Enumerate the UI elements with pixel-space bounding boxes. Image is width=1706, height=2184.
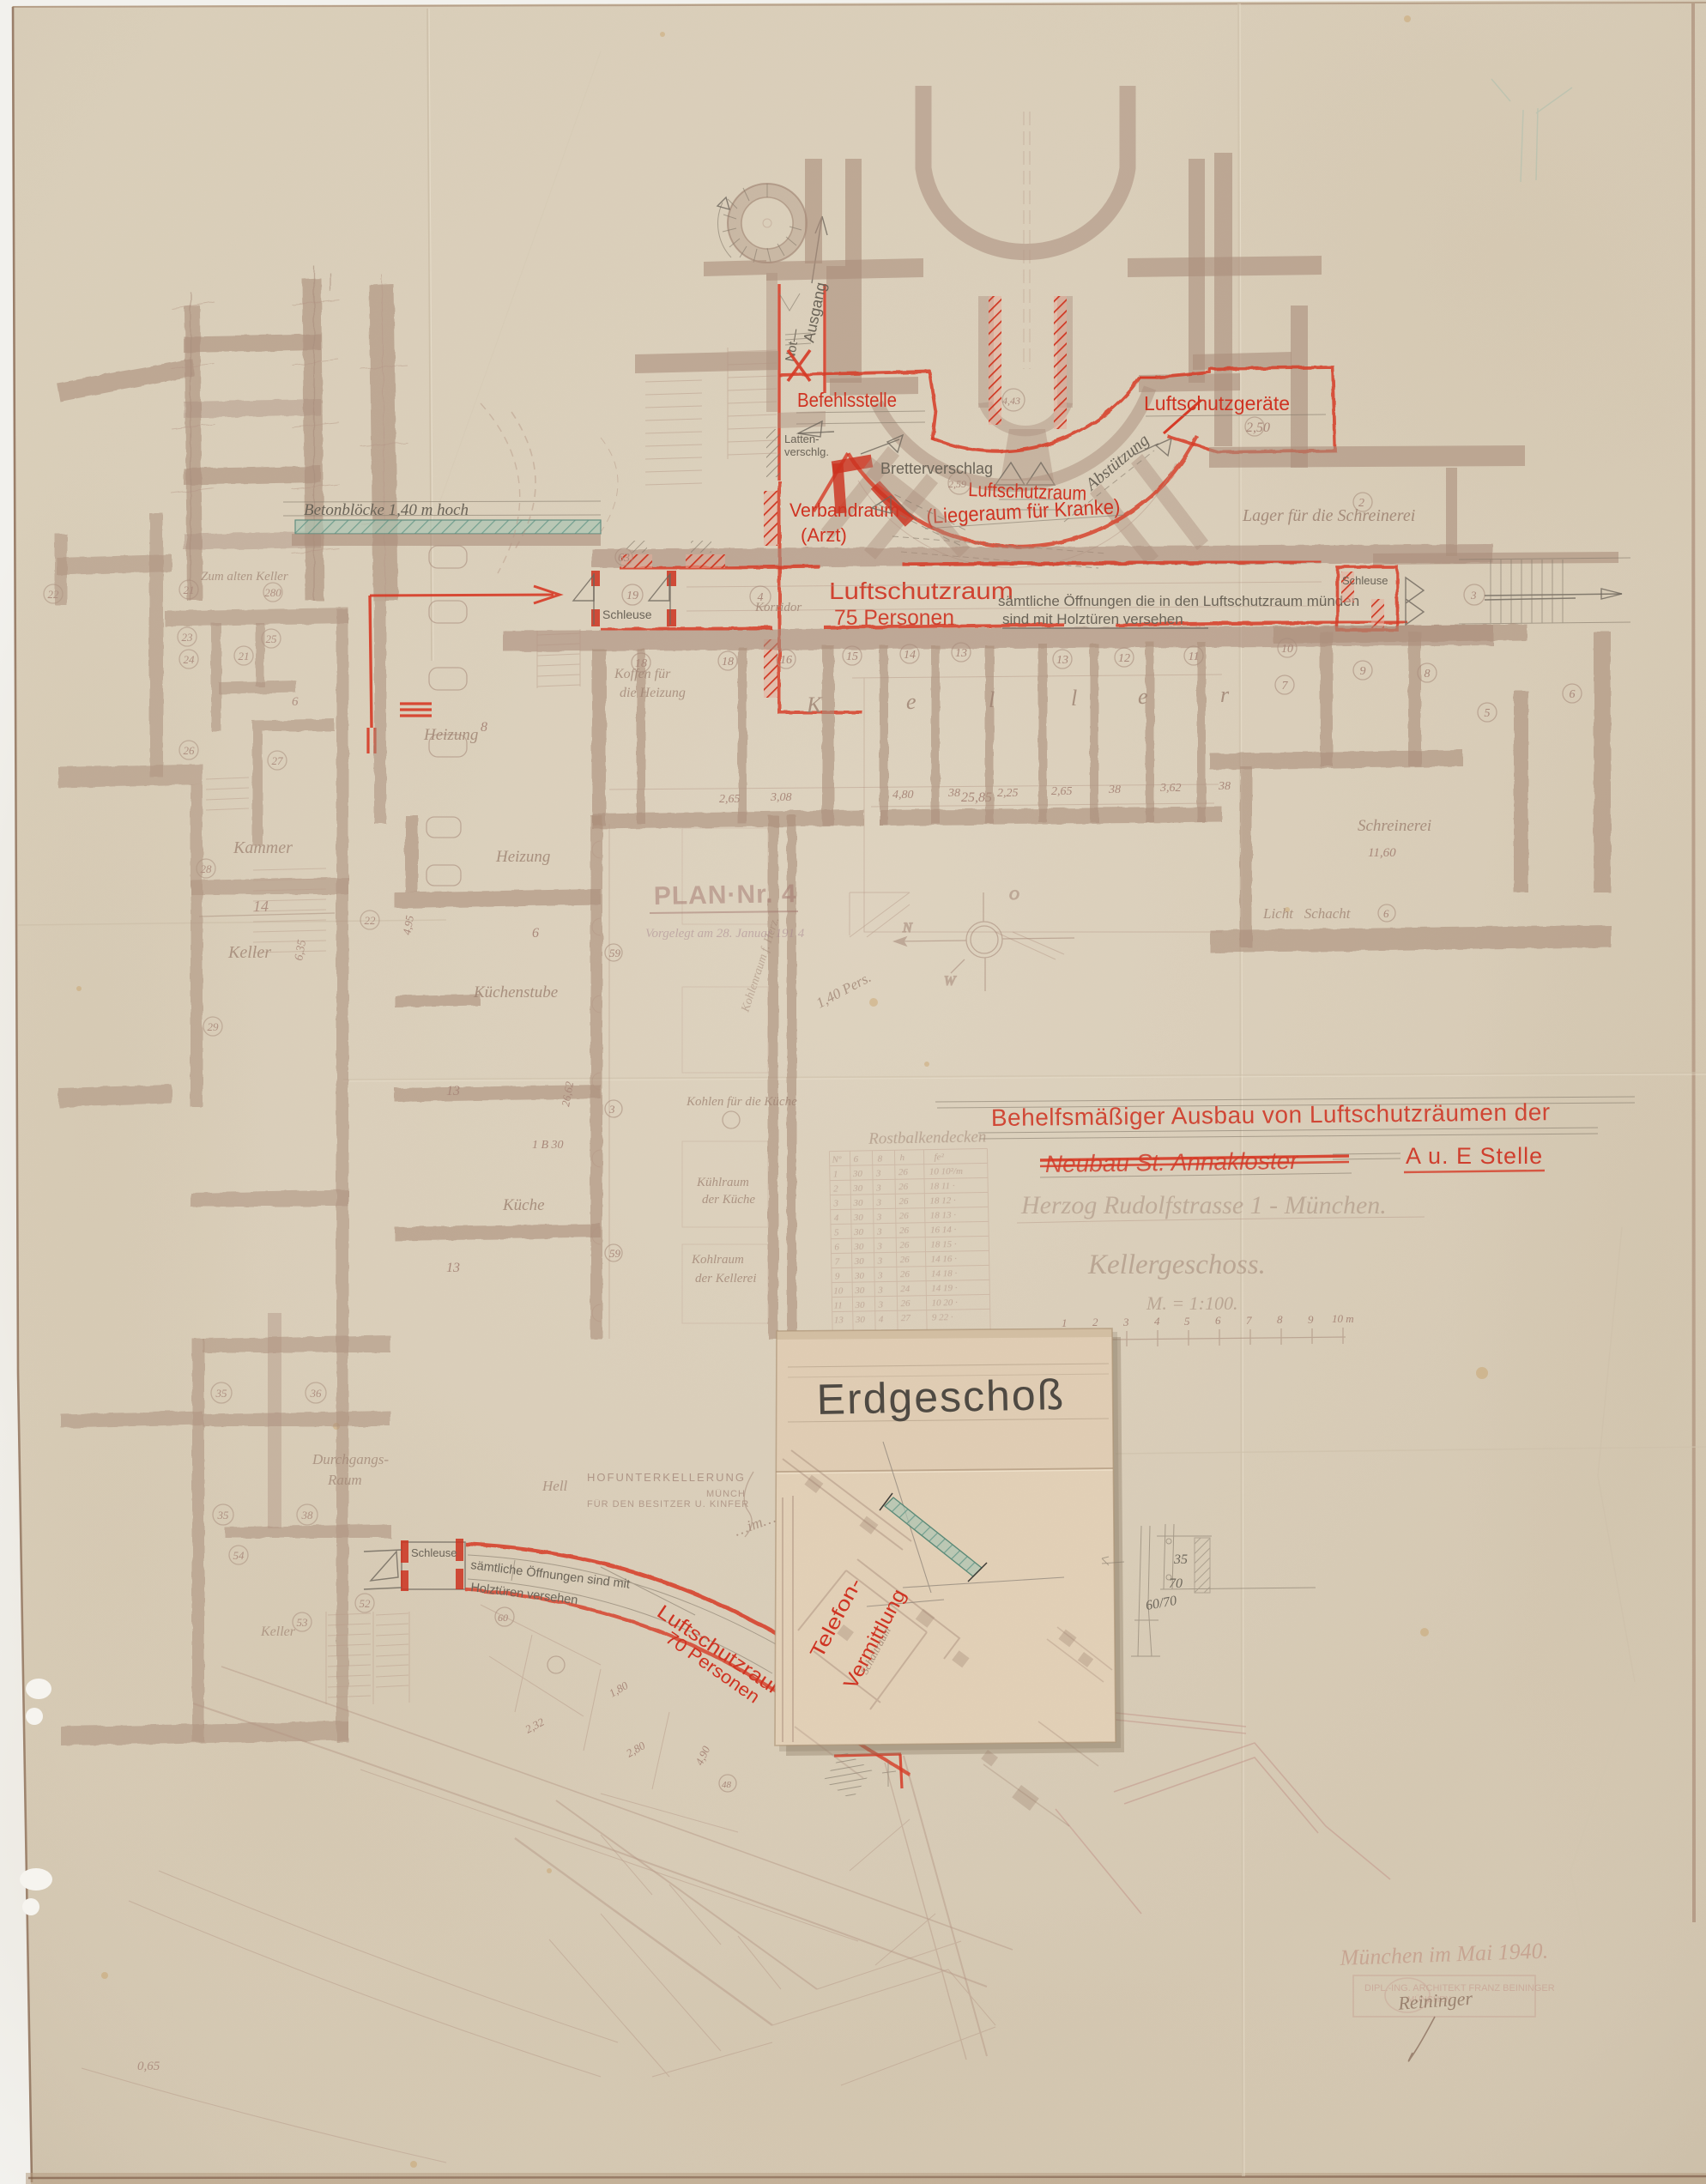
svg-text:10 m: 10 m bbox=[1332, 1312, 1354, 1325]
svg-text:Schleuse: Schleuse bbox=[411, 1546, 457, 1559]
svg-text:3: 3 bbox=[875, 1169, 881, 1179]
svg-text:l: l bbox=[989, 687, 995, 712]
svg-text:FÜR DEN BESITZER U. KINFER: FÜR DEN BESITZER U. KINFER bbox=[587, 1499, 749, 1509]
svg-text:7: 7 bbox=[1282, 680, 1289, 693]
svg-text:26: 26 bbox=[900, 1255, 910, 1265]
svg-text:2,50: 2,50 bbox=[1246, 420, 1270, 435]
svg-text:29: 29 bbox=[208, 1020, 220, 1033]
svg-text:30: 30 bbox=[854, 1271, 865, 1281]
svg-text:Zum alten Keller: Zum alten Keller bbox=[201, 570, 288, 584]
svg-text:30: 30 bbox=[852, 1169, 863, 1179]
svg-text:15: 15 bbox=[846, 650, 858, 663]
svg-text:18 11 ·: 18 11 · bbox=[929, 1181, 955, 1192]
svg-text:verschlg.: verschlg. bbox=[784, 445, 829, 458]
svg-text:Kammer: Kammer bbox=[233, 838, 293, 857]
svg-text:4: 4 bbox=[1154, 1315, 1160, 1328]
svg-text:Küchenstube: Küchenstube bbox=[473, 983, 558, 1001]
svg-text:Bretterverschlag: Bretterverschlag bbox=[880, 460, 993, 477]
svg-text:Luftschutzgeräte: Luftschutzgeräte bbox=[1144, 392, 1290, 414]
svg-text:6: 6 bbox=[854, 1154, 859, 1165]
svg-text:26: 26 bbox=[898, 1196, 909, 1207]
svg-text:1: 1 bbox=[1062, 1316, 1068, 1329]
svg-text:Erdgeschoß: Erdgeschoß bbox=[816, 1370, 1066, 1424]
svg-text:18 12 ·: 18 12 · bbox=[929, 1195, 956, 1207]
svg-text:13: 13 bbox=[834, 1315, 844, 1325]
svg-text:27: 27 bbox=[272, 754, 284, 767]
svg-text:N: N bbox=[902, 921, 913, 935]
svg-text:Verbandraum: Verbandraum bbox=[789, 499, 899, 521]
svg-text:4,80: 4,80 bbox=[892, 789, 914, 802]
svg-text:8: 8 bbox=[1425, 668, 1431, 681]
svg-text:1 B 30: 1 B 30 bbox=[532, 1139, 564, 1152]
svg-text:30: 30 bbox=[855, 1315, 866, 1325]
svg-text:35: 35 bbox=[217, 1509, 230, 1522]
svg-text:Herzog Rudolfstrasse 1 - Münch: Herzog Rudolfstrasse 1 - München. bbox=[1020, 1191, 1387, 1219]
svg-text:12: 12 bbox=[1118, 652, 1130, 665]
svg-text:38: 38 bbox=[947, 787, 960, 800]
svg-text:Befehlsstelle: Befehlsstelle bbox=[797, 389, 897, 411]
svg-text:Durchgangs-: Durchgangs- bbox=[312, 1451, 389, 1467]
svg-text:10 10²/m: 10 10²/m bbox=[929, 1166, 963, 1177]
svg-text:24: 24 bbox=[900, 1284, 910, 1294]
svg-text:Lager für die Schreinerei: Lager für die Schreinerei bbox=[1242, 506, 1415, 525]
svg-text:18: 18 bbox=[722, 656, 734, 669]
svg-text:4: 4 bbox=[834, 1213, 839, 1223]
svg-text:2: 2 bbox=[833, 1183, 838, 1194]
svg-text:8: 8 bbox=[1277, 1313, 1283, 1326]
svg-text:5: 5 bbox=[1485, 707, 1491, 720]
svg-text:8: 8 bbox=[481, 720, 487, 735]
svg-text:e: e bbox=[906, 689, 917, 714]
svg-text:36: 36 bbox=[310, 1387, 323, 1400]
svg-text:7: 7 bbox=[835, 1256, 840, 1267]
svg-text:Licht Schacht: Licht Schacht bbox=[1262, 905, 1352, 922]
svg-text:9: 9 bbox=[1308, 1313, 1314, 1326]
svg-text:3: 3 bbox=[877, 1286, 883, 1296]
svg-text:26: 26 bbox=[899, 1211, 910, 1221]
svg-text:Küche: Küche bbox=[502, 1196, 545, 1214]
svg-text:13: 13 bbox=[446, 1084, 460, 1098]
svg-text:13: 13 bbox=[955, 647, 967, 660]
svg-text:6: 6 bbox=[834, 1242, 839, 1252]
svg-text:30: 30 bbox=[854, 1300, 865, 1310]
svg-text:23: 23 bbox=[182, 631, 194, 644]
svg-text:14 19 ·: 14 19 · bbox=[931, 1283, 958, 1294]
svg-text:0,65: 0,65 bbox=[137, 2060, 160, 2073]
svg-text:4,43: 4,43 bbox=[1002, 395, 1020, 407]
svg-text:sämtliche Öffnungen die in den: sämtliche Öffnungen die in den Luftschut… bbox=[998, 593, 1359, 609]
svg-text:38: 38 bbox=[1218, 780, 1231, 793]
svg-text:3,62: 3,62 bbox=[1159, 782, 1182, 795]
svg-text:27: 27 bbox=[901, 1313, 911, 1323]
svg-text:10: 10 bbox=[833, 1286, 844, 1296]
svg-text:2,65: 2,65 bbox=[1051, 785, 1073, 798]
svg-text:9: 9 bbox=[1360, 665, 1366, 678]
svg-text:10 20 ·: 10 20 · bbox=[931, 1298, 958, 1309]
svg-text:22: 22 bbox=[365, 914, 377, 927]
svg-text:Schreinerei: Schreinerei bbox=[1358, 817, 1431, 835]
svg-text:3: 3 bbox=[608, 1103, 615, 1116]
svg-text:Betonblöcke 1,40 m hoch: Betonblöcke 1,40 m hoch bbox=[304, 501, 469, 519]
svg-text:e: e bbox=[1138, 684, 1148, 709]
svg-text:18 13 ·: 18 13 · bbox=[930, 1210, 957, 1221]
svg-text:3: 3 bbox=[876, 1213, 882, 1223]
svg-text:59: 59 bbox=[609, 947, 621, 959]
svg-text:30: 30 bbox=[854, 1286, 865, 1296]
svg-text:3: 3 bbox=[877, 1256, 883, 1267]
svg-text:5: 5 bbox=[834, 1227, 839, 1237]
svg-text:18 15 ·: 18 15 · bbox=[930, 1239, 957, 1250]
svg-text:16: 16 bbox=[780, 654, 792, 667]
svg-text:54: 54 bbox=[233, 1549, 245, 1562]
svg-text:Heizung: Heizung bbox=[495, 848, 550, 866]
svg-text:r: r bbox=[1220, 682, 1230, 707]
svg-text:2: 2 bbox=[1358, 497, 1364, 510]
svg-text:10: 10 bbox=[1281, 643, 1293, 656]
svg-text:19: 19 bbox=[626, 590, 638, 602]
svg-text:8: 8 bbox=[878, 1154, 883, 1165]
svg-text:280: 280 bbox=[264, 586, 281, 599]
svg-text:30: 30 bbox=[853, 1242, 864, 1252]
svg-text:3: 3 bbox=[1122, 1316, 1129, 1328]
svg-text:28: 28 bbox=[201, 862, 213, 875]
svg-text:35: 35 bbox=[1173, 1552, 1188, 1567]
svg-text:26: 26 bbox=[898, 1167, 909, 1177]
svg-text:die Heizung: die Heizung bbox=[620, 686, 686, 700]
svg-text:26: 26 bbox=[899, 1225, 910, 1236]
svg-text:Kohlraum: Kohlraum bbox=[691, 1253, 744, 1267]
svg-text:9: 9 bbox=[835, 1271, 840, 1281]
svg-text:26: 26 bbox=[899, 1240, 910, 1250]
svg-text:Rostbalkendecken: Rostbalkendecken bbox=[868, 1128, 987, 1147]
svg-text:Schleuse: Schleuse bbox=[1342, 574, 1388, 587]
svg-text:2,65: 2,65 bbox=[719, 793, 741, 806]
svg-text:5: 5 bbox=[1184, 1315, 1190, 1328]
svg-text:l: l bbox=[1071, 686, 1077, 711]
svg-text:der Kellerei: der Kellerei bbox=[695, 1272, 757, 1286]
svg-text:48: 48 bbox=[722, 1780, 732, 1790]
svg-text:24: 24 bbox=[184, 653, 196, 666]
svg-text:fe²: fe² bbox=[934, 1152, 944, 1162]
svg-text:11: 11 bbox=[833, 1300, 842, 1310]
svg-text:26: 26 bbox=[900, 1269, 910, 1280]
svg-text:30: 30 bbox=[853, 1227, 864, 1237]
svg-text:22: 22 bbox=[48, 588, 60, 601]
svg-text:6: 6 bbox=[532, 926, 539, 941]
svg-text:Raum: Raum bbox=[327, 1472, 362, 1488]
svg-text:13: 13 bbox=[1056, 654, 1068, 667]
svg-text:13: 13 bbox=[446, 1261, 460, 1275]
svg-text:h: h bbox=[899, 1152, 904, 1163]
svg-text:30: 30 bbox=[852, 1198, 863, 1208]
svg-text:HOFUNTERKELLERUNG: HOFUNTERKELLERUNG bbox=[587, 1471, 746, 1484]
svg-text:2,25: 2,25 bbox=[997, 787, 1019, 800]
svg-text:11,60: 11,60 bbox=[1368, 846, 1396, 860]
svg-text:6: 6 bbox=[292, 695, 299, 709]
svg-text:30: 30 bbox=[854, 1256, 865, 1267]
svg-text:3: 3 bbox=[832, 1198, 838, 1208]
svg-text:(Arzt): (Arzt) bbox=[801, 524, 847, 546]
svg-text:Kellergeschoss.: Kellergeschoss. bbox=[1087, 1249, 1266, 1280]
svg-text:11: 11 bbox=[1189, 650, 1200, 663]
svg-text:30: 30 bbox=[852, 1183, 863, 1194]
svg-text:38: 38 bbox=[301, 1509, 314, 1522]
svg-text:14: 14 bbox=[904, 649, 916, 662]
svg-text:14 18 ·: 14 18 · bbox=[931, 1268, 958, 1280]
svg-text:2,59: 2,59 bbox=[948, 478, 966, 490]
svg-text:PLAN·Nr. 4: PLAN·Nr. 4 bbox=[654, 880, 797, 911]
svg-text:25: 25 bbox=[266, 632, 278, 645]
svg-text:16 14 ·: 16 14 · bbox=[930, 1225, 957, 1236]
svg-text:Vorgelegt am 28. Januar 191 4: Vorgelegt am 28. Januar 191 4 bbox=[645, 927, 805, 941]
svg-text:63: 63 bbox=[618, 552, 630, 565]
svg-text:A u. E Stelle: A u. E Stelle bbox=[1406, 1143, 1543, 1169]
svg-text:Kohlen für die Küche: Kohlen für die Küche bbox=[686, 1095, 797, 1109]
svg-text:6: 6 bbox=[1383, 907, 1389, 920]
svg-text:18: 18 bbox=[635, 657, 647, 670]
svg-text:6: 6 bbox=[1215, 1314, 1221, 1327]
svg-text:53: 53 bbox=[297, 1616, 309, 1629]
svg-text:2: 2 bbox=[1092, 1316, 1098, 1328]
svg-text:Keller: Keller bbox=[227, 943, 271, 962]
svg-text:3: 3 bbox=[875, 1198, 881, 1208]
svg-text:Heizung: Heizung bbox=[423, 726, 478, 744]
svg-text:26: 26 bbox=[184, 744, 196, 757]
svg-text:14 16 ·: 14 16 · bbox=[931, 1254, 958, 1265]
svg-text:K: K bbox=[806, 693, 823, 717]
svg-text:M. = 1:100.: M. = 1:100. bbox=[1146, 1292, 1238, 1314]
svg-text:Keller: Keller bbox=[260, 1624, 296, 1639]
svg-text:Hell: Hell bbox=[541, 1478, 568, 1494]
svg-text:26: 26 bbox=[900, 1298, 910, 1309]
svg-text:W: W bbox=[944, 974, 957, 989]
svg-text:sind mit Holztüren versehen: sind mit Holztüren versehen bbox=[1002, 611, 1183, 627]
svg-text:Nº: Nº bbox=[832, 1154, 843, 1165]
svg-text:3: 3 bbox=[876, 1227, 882, 1237]
svg-text:MÜNCH: MÜNCH bbox=[706, 1489, 746, 1499]
svg-text:3: 3 bbox=[877, 1271, 883, 1281]
svg-text:3: 3 bbox=[875, 1183, 881, 1194]
svg-text:Luftschutzraum: Luftschutzraum bbox=[829, 578, 1013, 604]
svg-text:3: 3 bbox=[876, 1242, 882, 1252]
svg-text:14: 14 bbox=[253, 898, 269, 915]
svg-text:4: 4 bbox=[758, 591, 764, 604]
svg-text:52: 52 bbox=[360, 1597, 372, 1610]
svg-text:59: 59 bbox=[609, 1247, 621, 1260]
svg-text:21: 21 bbox=[184, 584, 195, 596]
svg-text:3: 3 bbox=[1470, 589, 1477, 602]
svg-text:26: 26 bbox=[898, 1182, 909, 1192]
svg-text:70: 70 bbox=[1169, 1576, 1183, 1591]
svg-text:4: 4 bbox=[879, 1315, 884, 1325]
svg-text:1: 1 bbox=[833, 1169, 838, 1179]
svg-text:O: O bbox=[1009, 888, 1019, 903]
svg-text:9 22 ·: 9 22 · bbox=[932, 1312, 953, 1322]
svg-text:35: 35 bbox=[215, 1387, 228, 1400]
svg-text:Schleuse: Schleuse bbox=[602, 608, 652, 621]
svg-text:21: 21 bbox=[239, 650, 250, 662]
svg-text:3,08: 3,08 bbox=[770, 791, 792, 804]
svg-text:7: 7 bbox=[1246, 1314, 1252, 1327]
svg-text:6: 6 bbox=[1570, 688, 1576, 701]
svg-text:Kühlraum: Kühlraum bbox=[696, 1176, 749, 1189]
svg-text:3: 3 bbox=[877, 1300, 883, 1310]
svg-text:30: 30 bbox=[853, 1213, 864, 1223]
svg-text:der Küche: der Küche bbox=[702, 1193, 755, 1207]
